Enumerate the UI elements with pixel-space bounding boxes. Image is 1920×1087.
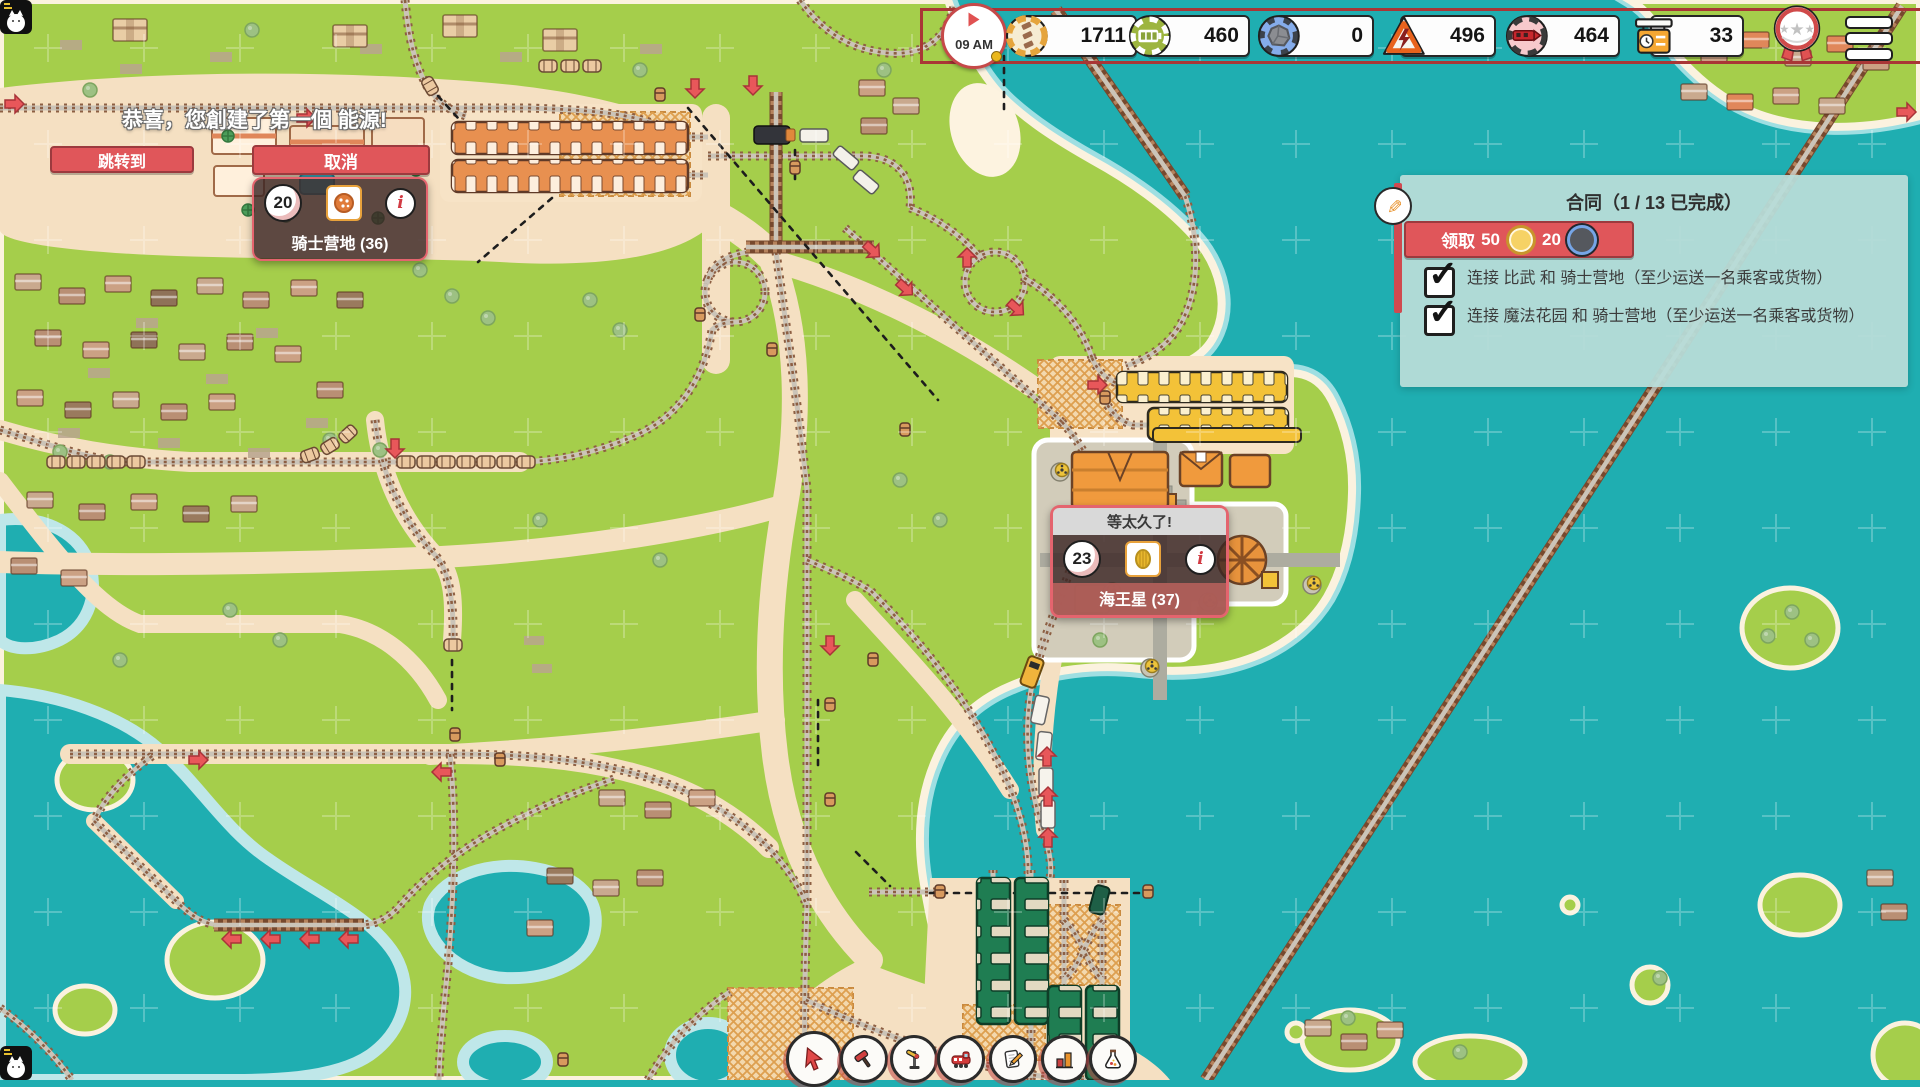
amber-egg-icon: [1132, 548, 1154, 570]
signal-icon: [902, 1047, 926, 1071]
station-info-button[interactable]: i: [1185, 544, 1216, 575]
cursor-icon: [801, 1046, 827, 1072]
schedule-icon: [1631, 13, 1677, 59]
complaint-bubble: 等太久了!: [1053, 508, 1226, 535]
battery-icon: [1127, 13, 1173, 59]
hammer-icon: [852, 1047, 876, 1071]
task-text: 连接 魔法花园 和 骑士营地（至少运送一名乘客或货物）: [1467, 305, 1864, 328]
time-display[interactable]: 09 AM: [941, 3, 1007, 69]
jump-to-button[interactable]: 跳转到: [50, 146, 194, 173]
schedule-value: 33: [1710, 24, 1733, 48]
svg-text:★: ★: [1805, 22, 1816, 36]
knight-station-panel: 取消 20 i 骑士营地 (36): [252, 145, 430, 261]
flask-icon: [1101, 1047, 1125, 1071]
corner-cat-badge[interactable]: [0, 0, 32, 34]
train-chip-icon: [1504, 13, 1550, 59]
energy-value: 460: [1204, 24, 1239, 48]
tool-research-button[interactable]: [1089, 1035, 1137, 1083]
cargo-icon-tile: [1125, 541, 1161, 577]
time-label: 09 AM: [944, 37, 1004, 52]
train-icon: [949, 1047, 973, 1071]
station-name[interactable]: 骑士营地 (36): [254, 227, 426, 259]
tool-trains-button[interactable]: [937, 1035, 985, 1083]
contract-icon: [1001, 1047, 1025, 1071]
station-info-button[interactable]: i: [385, 188, 416, 219]
top-hud: 09 AM 1711 460 0 496 464 33: [920, 8, 1920, 64]
contract-task: 连接 比武 和 骑士营地（至少运送一名乘客或货物）: [1424, 267, 1894, 298]
coins-value: 1711: [1080, 24, 1126, 48]
svg-text:★: ★: [1779, 22, 1790, 36]
contracts-title: 合同（1 / 13 已完成）: [1400, 175, 1908, 215]
clock-dot: [991, 51, 1002, 62]
contracts-panel: ✎ 合同（1 / 13 已完成） 领取 50 20 连接 比武 和 骑士营地（至…: [1400, 175, 1908, 387]
waiting-count-badge: 23: [1063, 540, 1101, 578]
counter-coins[interactable]: 1711: [1023, 15, 1137, 57]
cargo-icon-tile: [326, 185, 362, 221]
tool-signal-button[interactable]: [890, 1035, 938, 1083]
svg-text:★: ★: [1789, 20, 1804, 40]
counter-coal[interactable]: 0: [1275, 15, 1374, 57]
trains-value: 464: [1574, 24, 1609, 48]
bar-chart-icon: [1053, 1047, 1077, 1071]
counter-trains[interactable]: 464: [1523, 15, 1620, 57]
tool-statistics-button[interactable]: [1041, 1035, 1089, 1083]
pizza-icon: [333, 192, 355, 214]
station-name[interactable]: 海王星 (37): [1053, 583, 1226, 615]
claim-reward-button[interactable]: 领取 50 20: [1404, 221, 1634, 258]
cancel-button[interactable]: 取消: [252, 145, 430, 175]
tool-contracts-button[interactable]: [989, 1035, 1037, 1083]
counter-energy[interactable]: 460: [1146, 15, 1250, 57]
coin-icon: [1004, 13, 1050, 59]
medal-button[interactable]: ★★★: [1769, 3, 1825, 67]
task-text: 连接 比武 和 骑士营地（至少运送一名乘客或货物）: [1467, 267, 1832, 290]
notification-message: 恭喜，您創建了第一個 能源!: [122, 104, 387, 134]
waiting-count-badge: 20: [264, 184, 302, 222]
counter-hazard[interactable]: 496: [1400, 15, 1496, 57]
task-checkbox-checked[interactable]: [1424, 305, 1455, 336]
claim-parts-amount: 20: [1542, 230, 1561, 250]
pencil-icon: ✎: [1381, 198, 1404, 214]
menu-button[interactable]: [1845, 16, 1891, 56]
tool-demolish-button[interactable]: [840, 1035, 888, 1083]
hazard-icon: [1381, 13, 1427, 59]
contract-task: 连接 魔法花园 和 骑士营地（至少运送一名乘客或货物）: [1424, 305, 1894, 336]
counter-schedule[interactable]: 33: [1650, 15, 1744, 57]
coal-icon: [1256, 13, 1302, 59]
neptune-station-panel: 等太久了! 23 i 海王星 (37): [1050, 505, 1229, 618]
hazard-value: 496: [1450, 24, 1485, 48]
gear-icon: [1567, 225, 1597, 255]
contract-collapse-button[interactable]: ✎: [1374, 187, 1412, 225]
play-icon: [969, 13, 980, 27]
claim-money-amount: 50: [1481, 230, 1500, 250]
tool-select-button[interactable]: [786, 1031, 842, 1087]
claim-label: 领取: [1441, 227, 1475, 252]
coin-icon: [1506, 225, 1536, 255]
coal-value: 0: [1351, 24, 1363, 48]
corner-cat-badge[interactable]: [0, 1046, 32, 1080]
